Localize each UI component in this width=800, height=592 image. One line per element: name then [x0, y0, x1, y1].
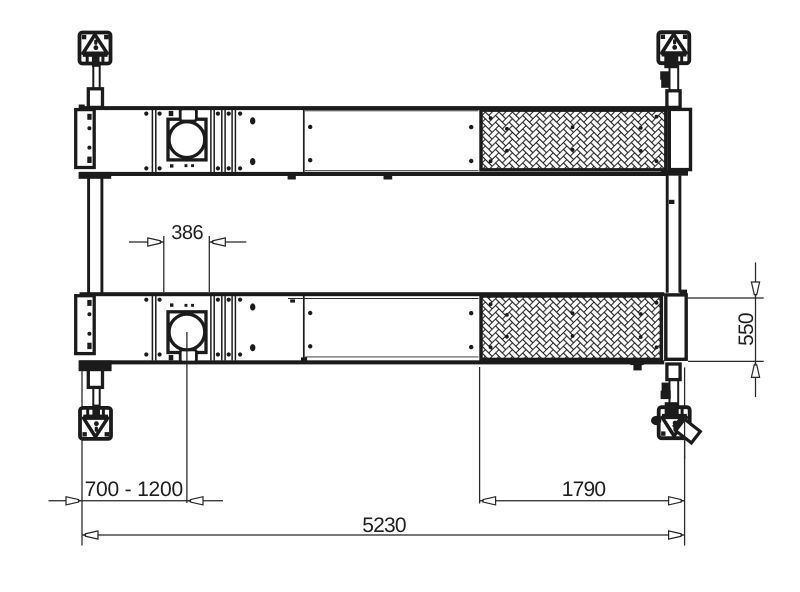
svg-text:5230: 5230 [362, 514, 406, 537]
svg-text:700 - 1200: 700 - 1200 [85, 478, 183, 501]
svg-text:386: 386 [171, 222, 203, 244]
svg-text:1790: 1790 [562, 478, 606, 501]
svg-text:550: 550 [735, 313, 758, 346]
